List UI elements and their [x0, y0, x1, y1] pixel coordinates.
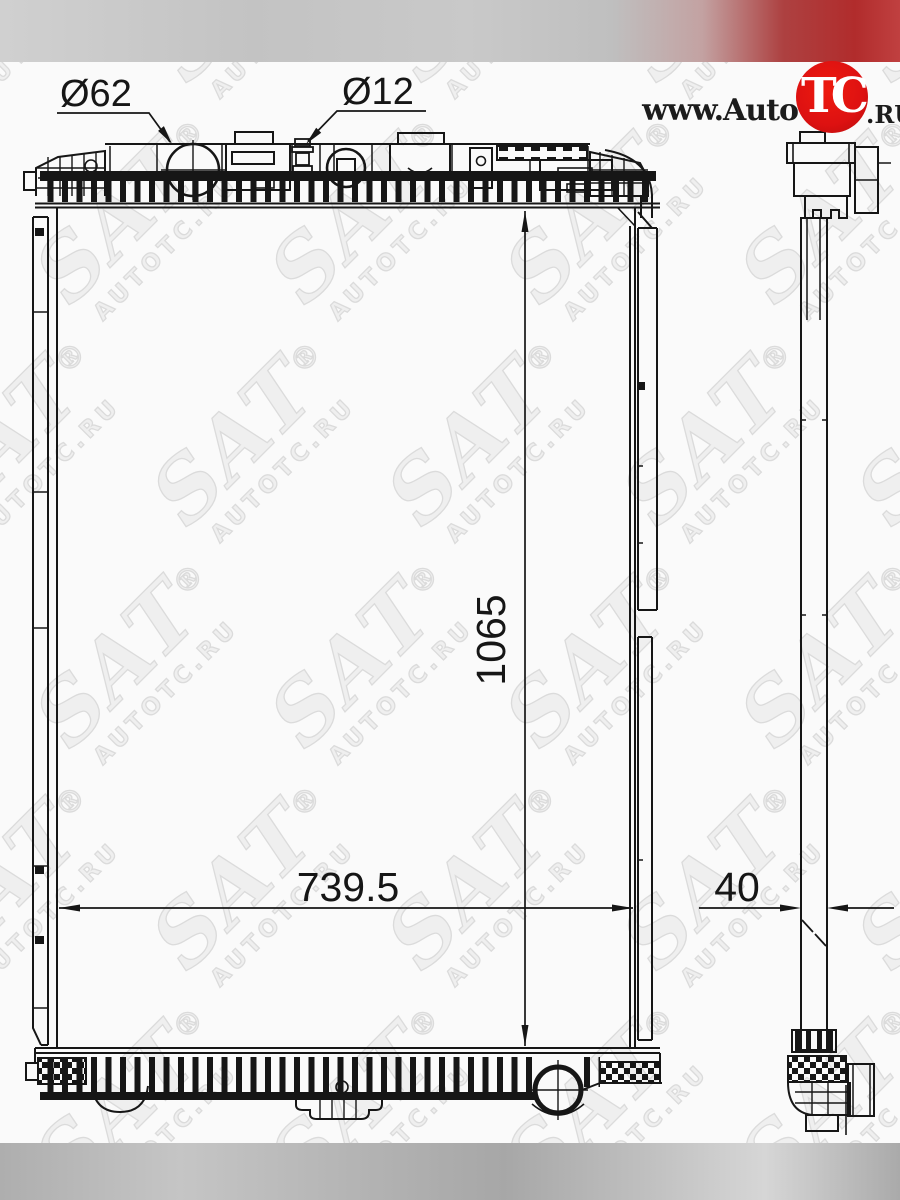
logo-text-suffix: .RU	[866, 100, 900, 129]
side-top-tank	[787, 132, 891, 218]
arrowhead	[522, 1025, 529, 1046]
side-bottom-tank	[788, 1030, 874, 1135]
core-left-bracket	[33, 217, 48, 1045]
dim-filler-neck-label: Ø62	[60, 73, 132, 115]
dim-core-depth-label: 40	[714, 864, 760, 910]
front-top-tank	[24, 132, 660, 218]
top-gradient-bar	[0, 0, 900, 62]
dim-core-width-label: 739.5	[297, 864, 400, 910]
dimension-core-height: 1065	[468, 211, 529, 1046]
radiator-side-view	[787, 132, 891, 1135]
technical-drawing: Ø62 Ø12 1065 739.5	[0, 0, 900, 1200]
arrowhead	[827, 905, 848, 912]
dimension-core-depth: 40	[699, 864, 894, 912]
dimension-core-width: 739.5	[59, 864, 633, 912]
front-core	[33, 208, 657, 1049]
side-core-column	[801, 218, 827, 1050]
radiator-front-view	[24, 132, 662, 1120]
dimension-filler-neck: Ø62	[57, 73, 172, 144]
dim-inlet-label: Ø12	[342, 71, 414, 113]
top-tank-left-stub	[24, 172, 36, 190]
front-bottom-tank	[26, 1048, 662, 1120]
bottom-outlet-port	[528, 1060, 588, 1120]
core-right-bracket	[638, 212, 657, 1040]
arrowhead	[522, 211, 529, 232]
bottom-gradient-bar	[0, 1143, 900, 1200]
arrowhead	[59, 905, 80, 912]
dimensions: Ø62 Ø12 1065 739.5	[57, 71, 894, 1046]
radiator-drawing-page: SAT®AUTOTC.RUSAT®AUTOTC.RUSAT®AUTOTC.RUS…	[0, 0, 900, 1200]
logo-text-prefix: www.Auto	[630, 93, 798, 128]
arrowhead	[780, 905, 801, 912]
logo-tc-badge: TC	[796, 61, 868, 133]
dim-core-height-label: 1065	[468, 594, 514, 685]
